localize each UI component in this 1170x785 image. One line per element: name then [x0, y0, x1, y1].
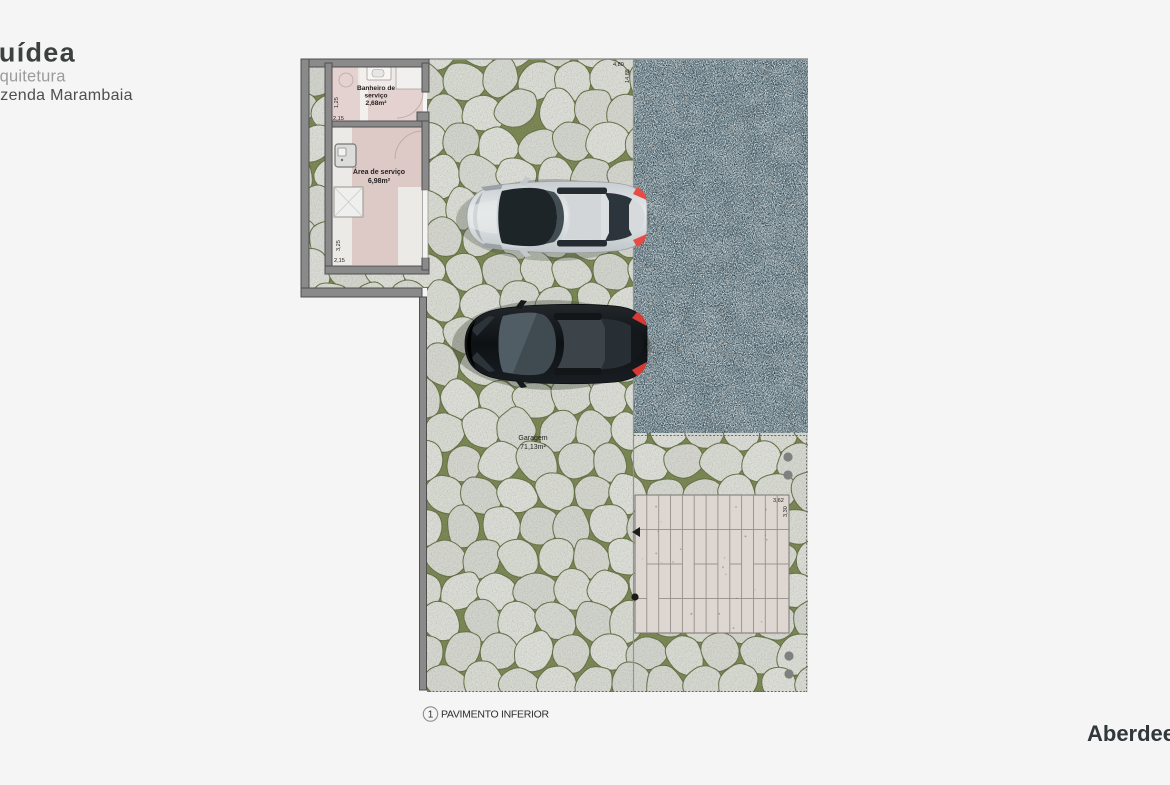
- svg-text:Orquídea: Orquídea: [0, 38, 76, 68]
- svg-text:Aberdeen: Aberdeen: [1087, 721, 1170, 746]
- svg-text:Área de serviço: Área de serviço: [353, 167, 405, 176]
- svg-text:2,68m²: 2,68m²: [366, 100, 388, 107]
- svg-text:4,80: 4,80: [613, 62, 624, 68]
- svg-text:3,25: 3,25: [336, 240, 342, 251]
- svg-text:1: 1: [428, 710, 434, 721]
- svg-text:3,62: 3,62: [773, 498, 784, 504]
- svg-text:Garagem: Garagem: [518, 435, 547, 442]
- svg-text:Banheiro de: Banheiro de: [357, 85, 395, 92]
- svg-text:serviço: serviço: [364, 93, 387, 100]
- svg-text:2,15: 2,15: [334, 258, 345, 264]
- svg-text:3,30: 3,30: [783, 506, 789, 517]
- svg-text:1,25: 1,25: [334, 97, 340, 108]
- svg-text:71,13m²: 71,13m²: [520, 444, 546, 451]
- svg-text:6,98m²: 6,98m²: [368, 178, 391, 185]
- svg-text:arquitetura: arquitetura: [0, 68, 66, 86]
- svg-text:Fazenda Marambaia: Fazenda Marambaia: [0, 87, 133, 104]
- svg-text:PAVIMENTO INFERIOR: PAVIMENTO INFERIOR: [441, 709, 549, 721]
- svg-text:2,15: 2,15: [333, 116, 344, 122]
- svg-text:14,85: 14,85: [625, 69, 631, 83]
